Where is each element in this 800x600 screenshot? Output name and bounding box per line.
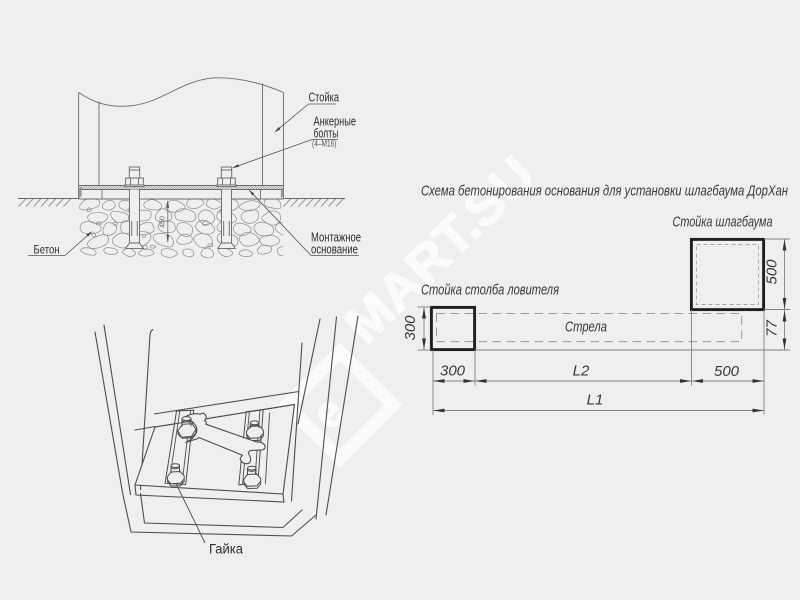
svg-text:L2: L2	[573, 363, 590, 380]
svg-text:Стойка шлагбаума: Стойка шлагбаума	[673, 214, 773, 231]
svg-text:(4–М16): (4–М16)	[312, 139, 337, 149]
svg-text:77: 77	[764, 320, 781, 337]
svg-text:450: 450	[160, 216, 167, 228]
svg-text:500: 500	[714, 363, 740, 380]
svg-text:500: 500	[764, 259, 781, 285]
svg-text:Стрела: Стрела	[565, 319, 607, 336]
svg-text:Стойка: Стойка	[309, 91, 340, 105]
svg-text:Гайка: Гайка	[209, 542, 243, 557]
svg-text:основание: основание	[311, 243, 358, 257]
svg-text:Схема бетонирования основания: Схема бетонирования основания для устано…	[421, 183, 788, 200]
svg-text:300: 300	[402, 315, 419, 341]
svg-text:L1: L1	[587, 392, 604, 409]
svg-text:300: 300	[440, 363, 466, 380]
svg-text:Бетон: Бетон	[34, 245, 60, 257]
svg-text:Стойка столба ловителя: Стойка столба ловителя	[421, 282, 559, 299]
